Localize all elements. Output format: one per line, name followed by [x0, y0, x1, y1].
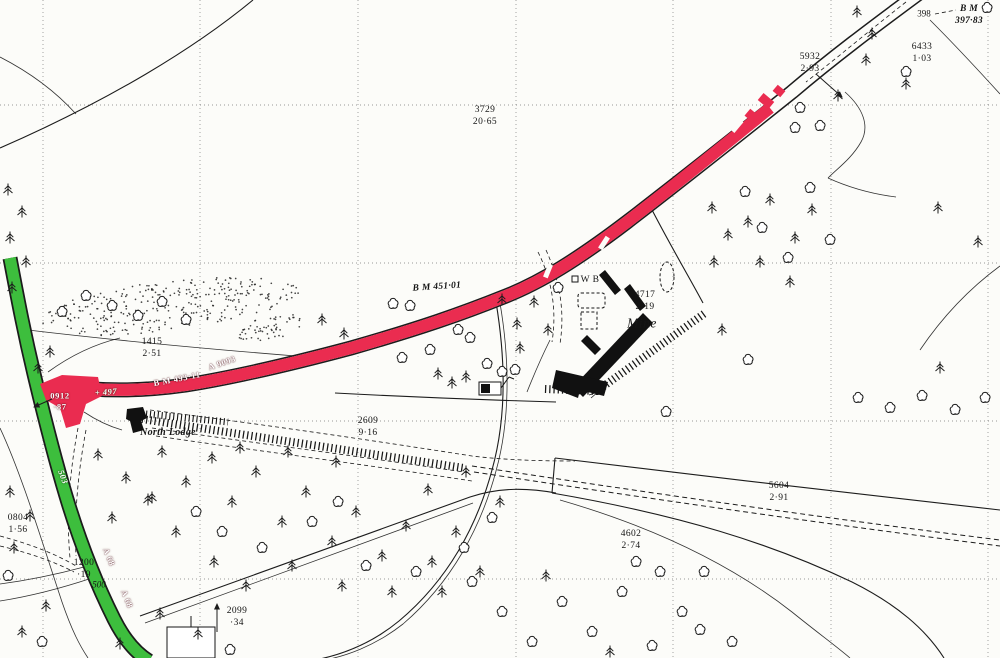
deciduous-tree-icon	[617, 586, 627, 596]
deciduous-tree-icon	[411, 566, 421, 576]
conifer-tree-icon	[208, 452, 217, 464]
conifer-tree-icon	[252, 466, 261, 478]
conifer-tree-icon	[452, 526, 461, 538]
parcel-0912: 0912 ·87	[50, 390, 69, 411]
deciduous-tree-icon	[217, 526, 227, 536]
parcel-5932: 5932 2·93	[800, 52, 821, 76]
deciduous-tree-icon	[397, 352, 407, 362]
deciduous-tree-icon	[81, 290, 91, 300]
conifer-tree-icon	[724, 229, 733, 241]
deciduous-tree-icon	[333, 496, 343, 506]
conifer-tree-icon	[210, 556, 219, 568]
conifer-tree-icon	[242, 580, 251, 592]
conifer-tree-icon	[318, 314, 327, 326]
deciduous-tree-icon	[487, 512, 497, 522]
deciduous-tree-icon	[497, 366, 507, 376]
conifer-tree-icon	[424, 484, 433, 496]
deciduous-tree-icon	[557, 596, 567, 606]
parcel-2609: 2609 9·16	[358, 416, 379, 440]
conifer-tree-icon	[388, 586, 397, 598]
deciduous-tree-icon	[257, 542, 267, 552]
benchmark-397-83: B M 397·83	[955, 4, 983, 28]
conifer-tree-icon	[756, 256, 765, 268]
conifer-tree-icon	[18, 206, 27, 218]
deciduous-tree-icon	[757, 222, 767, 232]
deciduous-tree-icon	[465, 332, 475, 342]
conifer-tree-icon	[378, 550, 387, 562]
place-north-lodge: North Lodge	[140, 427, 196, 440]
conifer-tree-icon	[462, 371, 471, 383]
deciduous-tree-icon	[467, 576, 477, 586]
conifer-tree-icon	[434, 368, 443, 380]
deciduous-tree-icon	[825, 234, 835, 244]
conifer-tree-icon	[156, 608, 165, 620]
conifer-tree-icon	[42, 600, 51, 612]
deciduous-tree-icon	[901, 66, 911, 76]
conifer-tree-icon	[428, 556, 437, 568]
parcel-4602: 4602 2·74	[621, 529, 642, 553]
deciduous-tree-icon	[885, 402, 895, 412]
conifer-tree-icon	[228, 496, 237, 508]
deciduous-tree-icon	[783, 252, 793, 262]
parcel-1200: 1200 ·19	[74, 558, 95, 582]
conifer-tree-icon	[182, 476, 191, 488]
conifer-tree-icon	[786, 276, 795, 288]
deciduous-tree-icon	[191, 506, 201, 516]
deciduous-tree-icon	[795, 102, 805, 112]
conifer-tree-icon	[718, 324, 727, 336]
deciduous-tree-icon	[743, 354, 753, 364]
deciduous-tree-icon	[790, 122, 800, 132]
conifer-tree-icon	[108, 512, 117, 524]
conifer-tree-icon	[516, 342, 525, 354]
conifer-tree-icon	[46, 346, 55, 358]
deciduous-tree-icon	[497, 606, 507, 616]
conifer-tree-icon	[853, 6, 862, 18]
conifer-tree-icon	[122, 472, 131, 484]
conifer-tree-icon	[4, 184, 13, 196]
conifer-tree-icon	[338, 580, 347, 592]
deciduous-tree-icon	[181, 314, 191, 324]
deciduous-tree-icon	[815, 120, 825, 130]
parcel-3729: 3729 20·65	[473, 105, 497, 129]
deciduous-tree-icon	[727, 636, 737, 646]
conifer-tree-icon	[172, 526, 181, 538]
deciduous-tree-icon	[677, 606, 687, 616]
conifer-tree-icon	[302, 486, 311, 498]
deciduous-tree-icon	[553, 282, 563, 292]
red-road	[40, 0, 918, 428]
conifer-tree-icon	[148, 492, 157, 504]
deciduous-tree-icon	[587, 626, 597, 636]
weighbridge-wb: W B	[581, 275, 600, 287]
conifer-tree-icon	[902, 78, 911, 90]
conifer-tree-icon	[808, 204, 817, 216]
weighbridge-symbol	[572, 276, 578, 282]
conifer-tree-icon	[158, 446, 167, 458]
conifer-tree-icon	[513, 318, 522, 330]
deciduous-tree-icon	[980, 392, 990, 402]
deciduous-tree-icon	[695, 624, 705, 634]
conifer-tree-icon	[744, 216, 753, 228]
deciduous-tree-icon	[133, 310, 143, 320]
conifer-tree-icon	[22, 256, 31, 268]
field-boundaries	[0, 0, 1000, 658]
deciduous-tree-icon	[225, 644, 235, 654]
conifer-tree-icon	[606, 646, 615, 658]
conifer-tree-icon	[340, 328, 349, 340]
conifer-tree-icon	[934, 202, 943, 214]
conifer-tree-icon	[352, 506, 361, 518]
deciduous-tree-icon	[950, 404, 960, 414]
deciduous-tree-icon	[740, 186, 750, 196]
deciduous-tree-icon	[425, 344, 435, 354]
conifer-tree-icon	[94, 449, 103, 461]
deciduous-tree-icon	[527, 636, 537, 646]
conifer-tree-icon	[6, 232, 15, 244]
parcel-0804: 0804 1·56	[8, 513, 29, 537]
deciduous-tree-icon	[661, 406, 671, 416]
spot-height-500: 500	[92, 579, 106, 590]
deciduous-tree-icon	[631, 556, 641, 566]
conifer-tree-icon	[278, 516, 287, 528]
map-stage: 398B M 397·835932 2·936433 1·033729 20·6…	[0, 0, 1000, 658]
conifer-tree-icon	[18, 626, 27, 638]
parcel-6433: 6433 1·03	[912, 42, 933, 66]
parcel-2099: 2099 ·34	[227, 606, 248, 630]
deciduous-tree-icon	[307, 516, 317, 526]
conifer-tree-icon	[791, 232, 800, 244]
conifer-tree-icon	[710, 256, 719, 268]
deciduous-tree-icon	[107, 300, 117, 310]
deciduous-tree-icon	[388, 298, 398, 308]
conifer-tree-icon	[766, 194, 775, 206]
deciduous-tree-icon	[655, 566, 665, 576]
scrub-area	[42, 277, 300, 341]
deciduous-tree-icon	[453, 324, 463, 334]
deciduous-tree-icon	[805, 182, 815, 192]
deciduous-tree-icon	[647, 640, 657, 650]
deciduous-tree-icon	[853, 392, 863, 402]
map-canvas	[0, 0, 1000, 658]
conifer-tree-icon	[530, 296, 539, 308]
conifer-tree-icon	[544, 324, 553, 336]
conifer-tree-icon	[708, 202, 717, 214]
deciduous-tree-icon	[361, 560, 371, 570]
spot-height-497: + 497	[95, 386, 118, 398]
conifer-tree-icon	[236, 442, 245, 454]
parcel-4717: 4717 2·19	[635, 290, 656, 314]
deciduous-tree-icon	[57, 306, 67, 316]
deciduous-tree-icon	[482, 358, 492, 368]
conifer-tree-icon	[476, 566, 485, 578]
conifer-tree-icon	[288, 560, 297, 572]
conifer-tree-icon	[10, 542, 19, 554]
deciduous-tree-icon	[982, 2, 992, 12]
deciduous-tree-icon	[405, 300, 415, 310]
parcel-1415: 1415 2·51	[142, 337, 163, 361]
conifer-tree-icon	[6, 486, 15, 498]
misc-buildings	[167, 377, 514, 658]
parcel-5604: 5604 2·91	[769, 481, 790, 505]
conifer-tree-icon	[936, 362, 945, 374]
place-mine: Mine	[627, 316, 657, 333]
deciduous-tree-icon	[917, 390, 927, 400]
deciduous-tree-icon	[699, 566, 709, 576]
deciduous-tree-icon	[3, 570, 13, 580]
conifer-tree-icon	[542, 570, 551, 582]
conifer-tree-icon	[974, 236, 983, 248]
tree-symbols	[3, 2, 992, 657]
spot-height-398: 398	[917, 8, 931, 19]
conifer-tree-icon	[462, 466, 471, 478]
conifer-tree-icon	[496, 496, 505, 508]
deciduous-tree-icon	[37, 636, 47, 646]
conifer-tree-icon	[448, 377, 457, 389]
deciduous-tree-icon	[510, 364, 520, 374]
conifer-tree-icon	[862, 54, 871, 66]
deciduous-tree-icon	[157, 296, 167, 306]
